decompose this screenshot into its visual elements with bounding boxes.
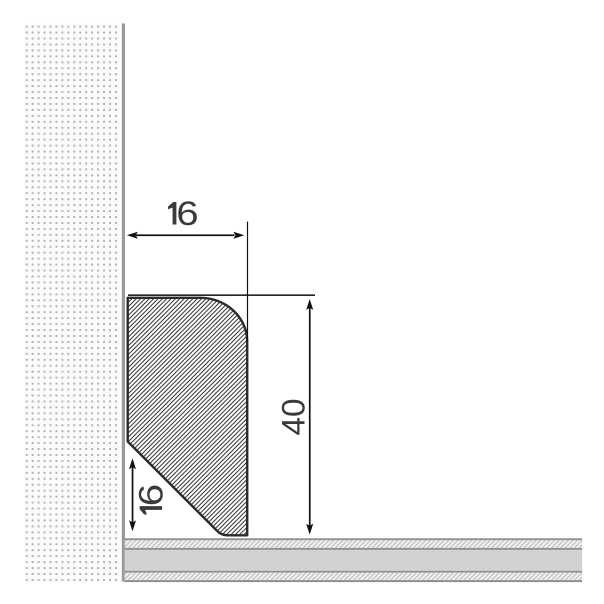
svg-text:40: 40 [275, 399, 311, 436]
